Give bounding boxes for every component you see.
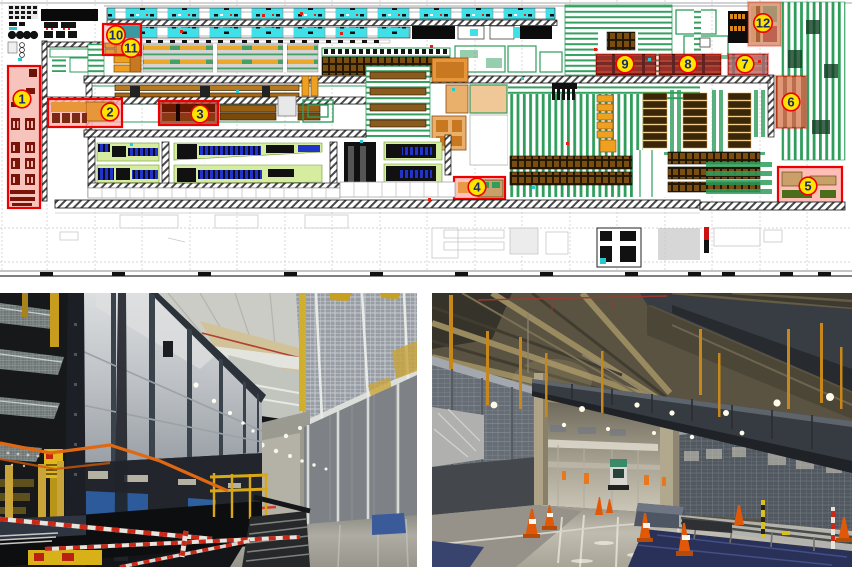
svg-text:4: 4 — [473, 180, 481, 195]
svg-text:5: 5 — [804, 179, 811, 194]
svg-text:10: 10 — [109, 28, 123, 43]
svg-text:3: 3 — [196, 107, 203, 122]
svg-text:2: 2 — [106, 105, 113, 120]
svg-text:12: 12 — [756, 16, 770, 31]
svg-text:11: 11 — [124, 41, 138, 56]
svg-text:6: 6 — [787, 95, 794, 110]
svg-text:9: 9 — [621, 57, 628, 72]
svg-text:8: 8 — [684, 57, 691, 72]
svg-text:1: 1 — [18, 92, 25, 107]
svg-text:7: 7 — [741, 57, 748, 72]
